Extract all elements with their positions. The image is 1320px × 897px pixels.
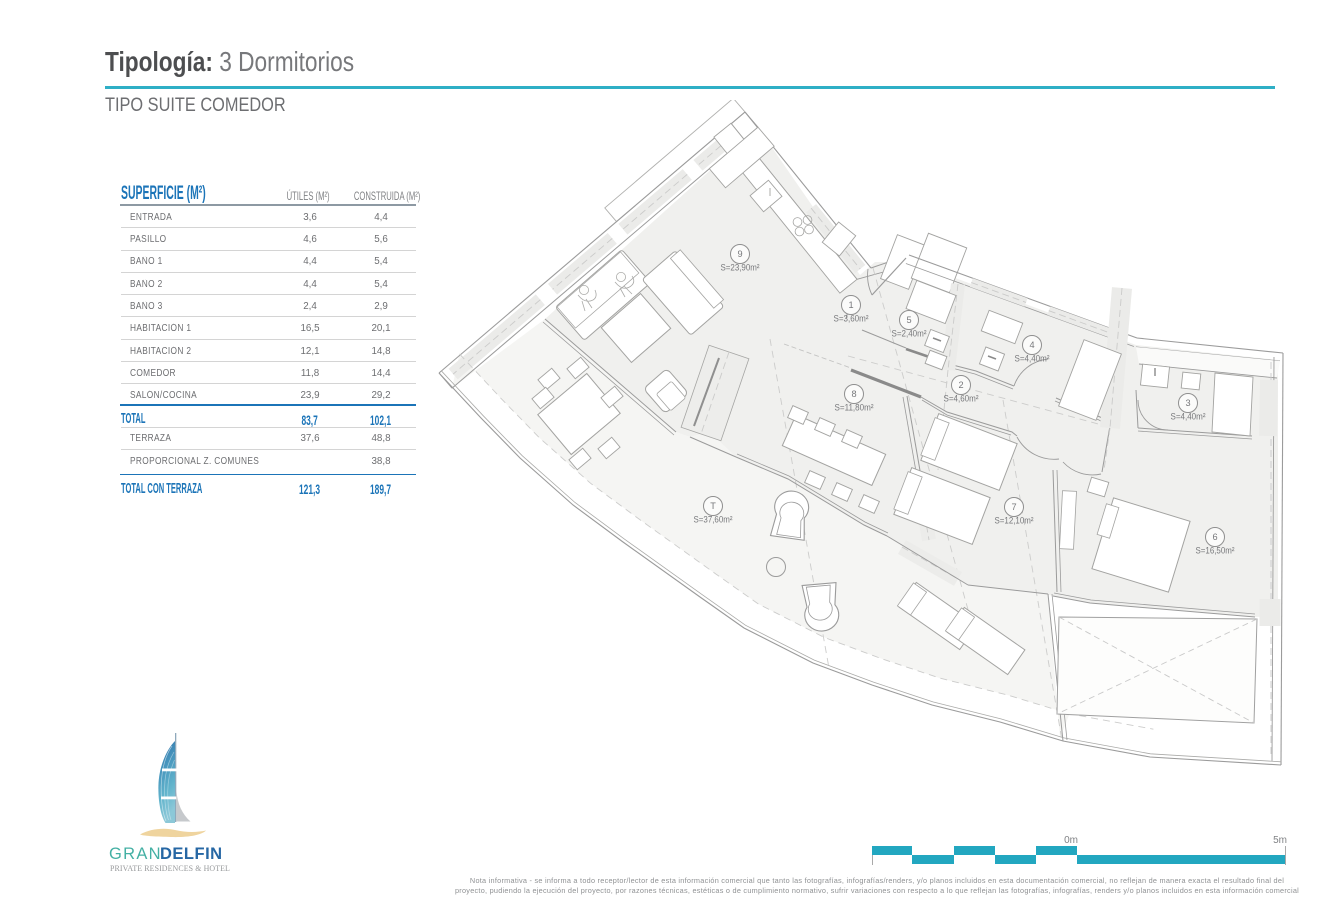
svg-text:DELFIN: DELFIN [160,845,223,863]
svg-text:6: 6 [1212,532,1217,542]
svg-text:S=4,60m²: S=4,60m² [944,394,979,405]
svg-text:3: 3 [1185,398,1190,408]
svg-text:S=37,60m²: S=37,60m² [694,515,733,526]
svg-text:S=4,40m²: S=4,40m² [1171,412,1206,423]
svg-text:S=12,10m²: S=12,10m² [995,516,1034,527]
svg-text:S=4,40m²: S=4,40m² [1015,354,1050,365]
svg-text:9: 9 [737,249,742,259]
svg-text:GRAN: GRAN [109,845,162,863]
svg-text:S=16,50m²: S=16,50m² [1196,546,1235,557]
svg-text:1: 1 [848,300,853,310]
svg-text:T: T [710,501,716,511]
svg-text:S=11,80m²: S=11,80m² [835,403,874,414]
svg-text:7: 7 [1011,502,1016,512]
svg-text:8: 8 [851,389,856,399]
svg-text:S=2,40m²: S=2,40m² [892,329,927,340]
svg-text:S=3,60m²: S=3,60m² [834,314,869,325]
svg-text:S=23,90m²: S=23,90m² [721,263,760,274]
svg-text:2: 2 [958,380,963,390]
svg-text:5: 5 [906,315,911,325]
svg-text:4: 4 [1029,340,1034,350]
svg-text:PRIVATE RESIDENCES & HOTEL: PRIVATE RESIDENCES & HOTEL [110,864,230,873]
